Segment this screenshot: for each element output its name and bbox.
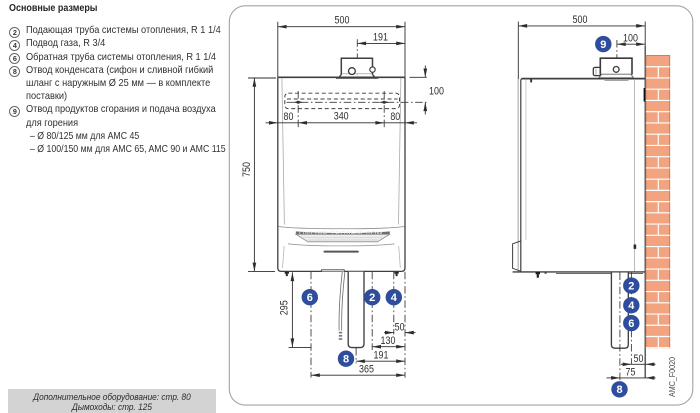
svg-text:130: 130: [381, 335, 396, 347]
svg-text:8: 8: [616, 384, 622, 396]
svg-text:191: 191: [373, 31, 388, 43]
svg-text:500: 500: [573, 14, 588, 26]
svg-text:191: 191: [374, 350, 389, 362]
svg-text:9: 9: [600, 39, 606, 51]
svg-text:2: 2: [628, 281, 634, 293]
svg-text:6: 6: [628, 318, 634, 330]
svg-text:340: 340: [334, 111, 349, 123]
svg-text:AMC_F0020: AMC_F0020: [667, 357, 677, 397]
svg-text:75: 75: [626, 367, 636, 379]
svg-text:2: 2: [369, 292, 375, 304]
svg-text:80: 80: [284, 111, 294, 123]
svg-text:8: 8: [343, 354, 349, 366]
svg-text:50: 50: [634, 353, 644, 365]
svg-text:100: 100: [623, 32, 638, 44]
svg-text:4: 4: [628, 300, 635, 312]
svg-text:295: 295: [278, 300, 290, 315]
svg-text:365: 365: [359, 364, 374, 376]
svg-text:80: 80: [390, 111, 400, 123]
svg-text:50: 50: [395, 321, 405, 333]
svg-text:500: 500: [335, 15, 350, 27]
svg-text:6: 6: [307, 292, 313, 304]
svg-text:750: 750: [241, 162, 253, 177]
svg-text:4: 4: [391, 292, 398, 304]
svg-text:100: 100: [429, 85, 444, 97]
